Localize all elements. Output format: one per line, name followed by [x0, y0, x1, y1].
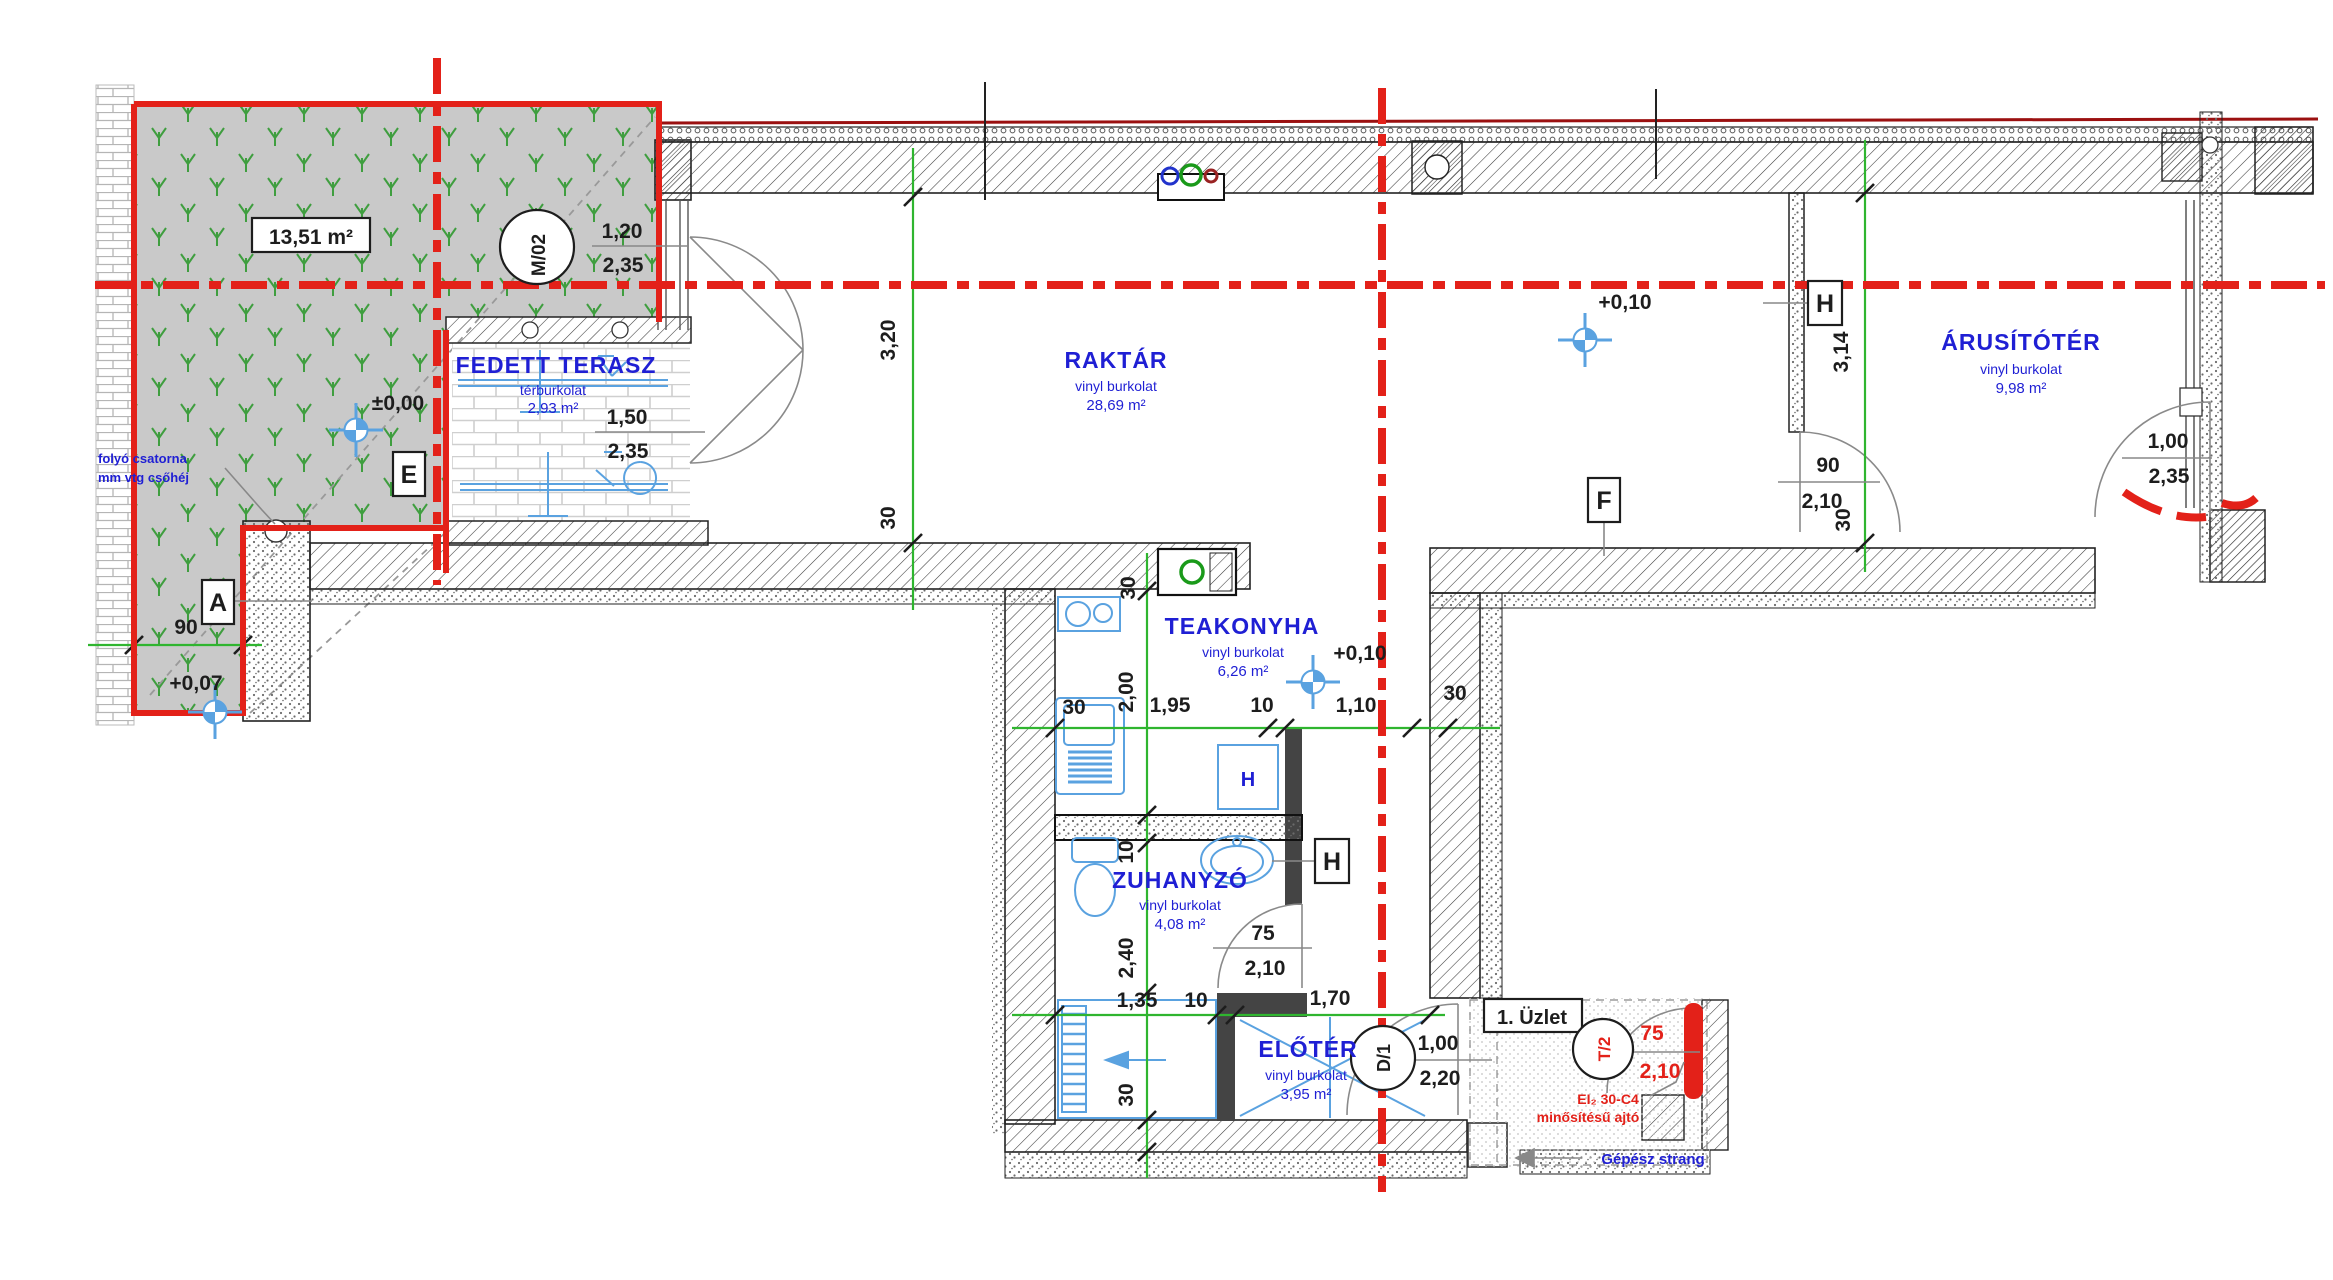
zuhanyzo-door-w: 75	[1251, 922, 1275, 945]
hall-bottom-insul	[310, 589, 1055, 604]
eloter-finish: vinyl burkolat	[1265, 1067, 1347, 1083]
section-a: A	[209, 589, 227, 617]
terrace-level: ±0,00	[372, 392, 424, 415]
raktar-wall-dim: 30	[877, 506, 900, 529]
eloter-name: ELŐTÉR	[1258, 1035, 1357, 1062]
teakonyha-wall-right-dim: 30	[1443, 682, 1466, 705]
arusitoter-depth-dim: 3,14	[1830, 331, 1853, 372]
zuhanyzo-name: ZUHANYZÓ	[1112, 866, 1248, 893]
existing-brick-wall	[96, 85, 134, 725]
zuhanyzo-depth-dim: 2,40	[1115, 938, 1138, 979]
terrace-window-w: 1,50	[607, 406, 648, 429]
teakonyha-opening-dim: 1,10	[1336, 694, 1377, 717]
arusitoter-bottom-wall	[1430, 548, 2095, 593]
fire-rating-2: minősítésű ajtó	[1537, 1109, 1640, 1125]
arusitoter-finish: vinyl burkolat	[1980, 361, 2062, 377]
eloter-door-w: 1,00	[1418, 1032, 1459, 1055]
raktar-level: +0,10	[1598, 291, 1651, 314]
top-wall-corner-pier	[2255, 127, 2313, 194]
eloter-door-h: 2,20	[1420, 1067, 1461, 1090]
hall-bottom-wall	[310, 543, 1250, 589]
right-wall-insul	[2200, 112, 2222, 582]
terrace-door-h: 2,35	[603, 254, 644, 277]
section-f: F	[1596, 487, 1611, 515]
corridor-right-wall	[1430, 593, 1480, 998]
partition-door-h: 2,10	[1802, 490, 1843, 513]
terrace-finish: térburkolat	[520, 382, 586, 398]
window-marker-label: M/02	[529, 234, 550, 276]
section-e: E	[401, 461, 418, 489]
garden-level: +0,07	[169, 672, 222, 695]
teakonyha-wall-left-dim: 30	[1062, 696, 1085, 719]
top-wall	[659, 142, 2313, 193]
corridor-bottom-insul	[1005, 1152, 1467, 1178]
teakonyha-wall-top-dim: 30	[1117, 576, 1140, 599]
corridor-left-insul	[992, 589, 1005, 1134]
eloter-partition-dim: 10	[1184, 989, 1207, 1012]
shop-label: 1. Üzlet	[1497, 1006, 1567, 1029]
teakonyha-level: +0,10	[1333, 642, 1386, 665]
top-wall-insulation	[659, 127, 2313, 142]
raktar-name: RAKTÁR	[1064, 346, 1167, 373]
terrace-bottom-wall	[446, 521, 708, 545]
terrace-window-h: 2,35	[608, 440, 649, 463]
eloter-area: 3,95 m²	[1281, 1086, 1332, 1103]
lobby-top-wall	[1217, 993, 1307, 1017]
teakonyha-area: 6,26 m²	[1218, 663, 1269, 680]
raktar-depth-dim: 3,20	[877, 320, 900, 361]
raktar-area: 28,69 m²	[1086, 397, 1145, 414]
zuhanyzo-finish: vinyl burkolat	[1139, 897, 1221, 913]
floor-plan-canvas: 13,51 m² +0,07 90 folyó csatorna mm vtg …	[0, 0, 2333, 1280]
section-h1: H	[1816, 290, 1834, 318]
garden-strip-dim: 90	[174, 616, 197, 639]
corridor-right-insul	[1480, 593, 1502, 998]
boiler-label: H	[1241, 769, 1255, 791]
raktar-partition	[1789, 193, 1804, 432]
teakonyha-partition-dim: 10	[1250, 694, 1273, 717]
drain-note-1: folyó csatorna	[98, 451, 188, 466]
raktar-finish: vinyl burkolat	[1075, 378, 1157, 394]
entry-door-h: 2,35	[2149, 465, 2190, 488]
teakonyha-width-dim: 1,95	[1150, 694, 1191, 717]
terrace-name: FEDETT TERASZ	[456, 352, 657, 378]
corridor-left-wall	[1005, 589, 1055, 1124]
fire-door-leaf	[1684, 1003, 1703, 1099]
section-h2: H	[1323, 848, 1341, 876]
fire-rating-1: EI₂ 30-C4	[1577, 1091, 1639, 1107]
corner-wall-block	[243, 521, 310, 721]
door-t2-label: T/2	[1595, 1037, 1614, 1062]
arusitoter-bottom-insul	[1430, 593, 2095, 608]
garden-area-label: 13,51 m²	[269, 226, 353, 249]
teakonyha-name: TEAKONYHA	[1165, 613, 1320, 639]
arusitoter-name: ÁRUSÍTÓTÉR	[1941, 328, 2101, 355]
shop-door-h: 2,10	[1640, 1060, 1681, 1083]
zuhanyzo-partition-dim: 10	[1115, 840, 1138, 863]
corridor-bottom-wall	[1005, 1120, 1467, 1152]
eloter-right-dim: 1,70	[1310, 987, 1351, 1010]
drain-note-2: mm vtg csőhéj	[98, 470, 189, 485]
terrace-area: 2,93 m²	[528, 400, 579, 417]
shop-door-w: 75	[1640, 1022, 1664, 1045]
floor-plan-drawing: 13,51 m² +0,07 90 folyó csatorna mm vtg …	[0, 0, 2333, 1280]
terrace-top-wall	[446, 317, 691, 343]
zuhanyzo-area: 4,08 m²	[1155, 916, 1206, 933]
teakonyha-depth-dim: 2,00	[1115, 672, 1138, 713]
kitchen-shower-partition	[1055, 815, 1302, 840]
terrace-door-w: 1,20	[602, 220, 643, 243]
eloter-left-dim: 1,35	[1117, 989, 1158, 1012]
teakonyha-finish: vinyl burkolat	[1202, 644, 1284, 660]
partition-door-w: 90	[1816, 454, 1839, 477]
right-wall-pier	[2162, 133, 2202, 181]
entry-door-w: 1,00	[2148, 430, 2189, 453]
door-d1-label: D/1	[1374, 1044, 1394, 1072]
eloter-wall-dim: 30	[1115, 1083, 1138, 1106]
lobby-left-wall	[1217, 1017, 1235, 1121]
zuhanyzo-door-h: 2,10	[1245, 957, 1286, 980]
mech-note: Gépész strang	[1601, 1151, 1704, 1168]
arusitoter-area: 9,98 m²	[1996, 380, 2047, 397]
flue-fixture	[1158, 549, 1236, 595]
